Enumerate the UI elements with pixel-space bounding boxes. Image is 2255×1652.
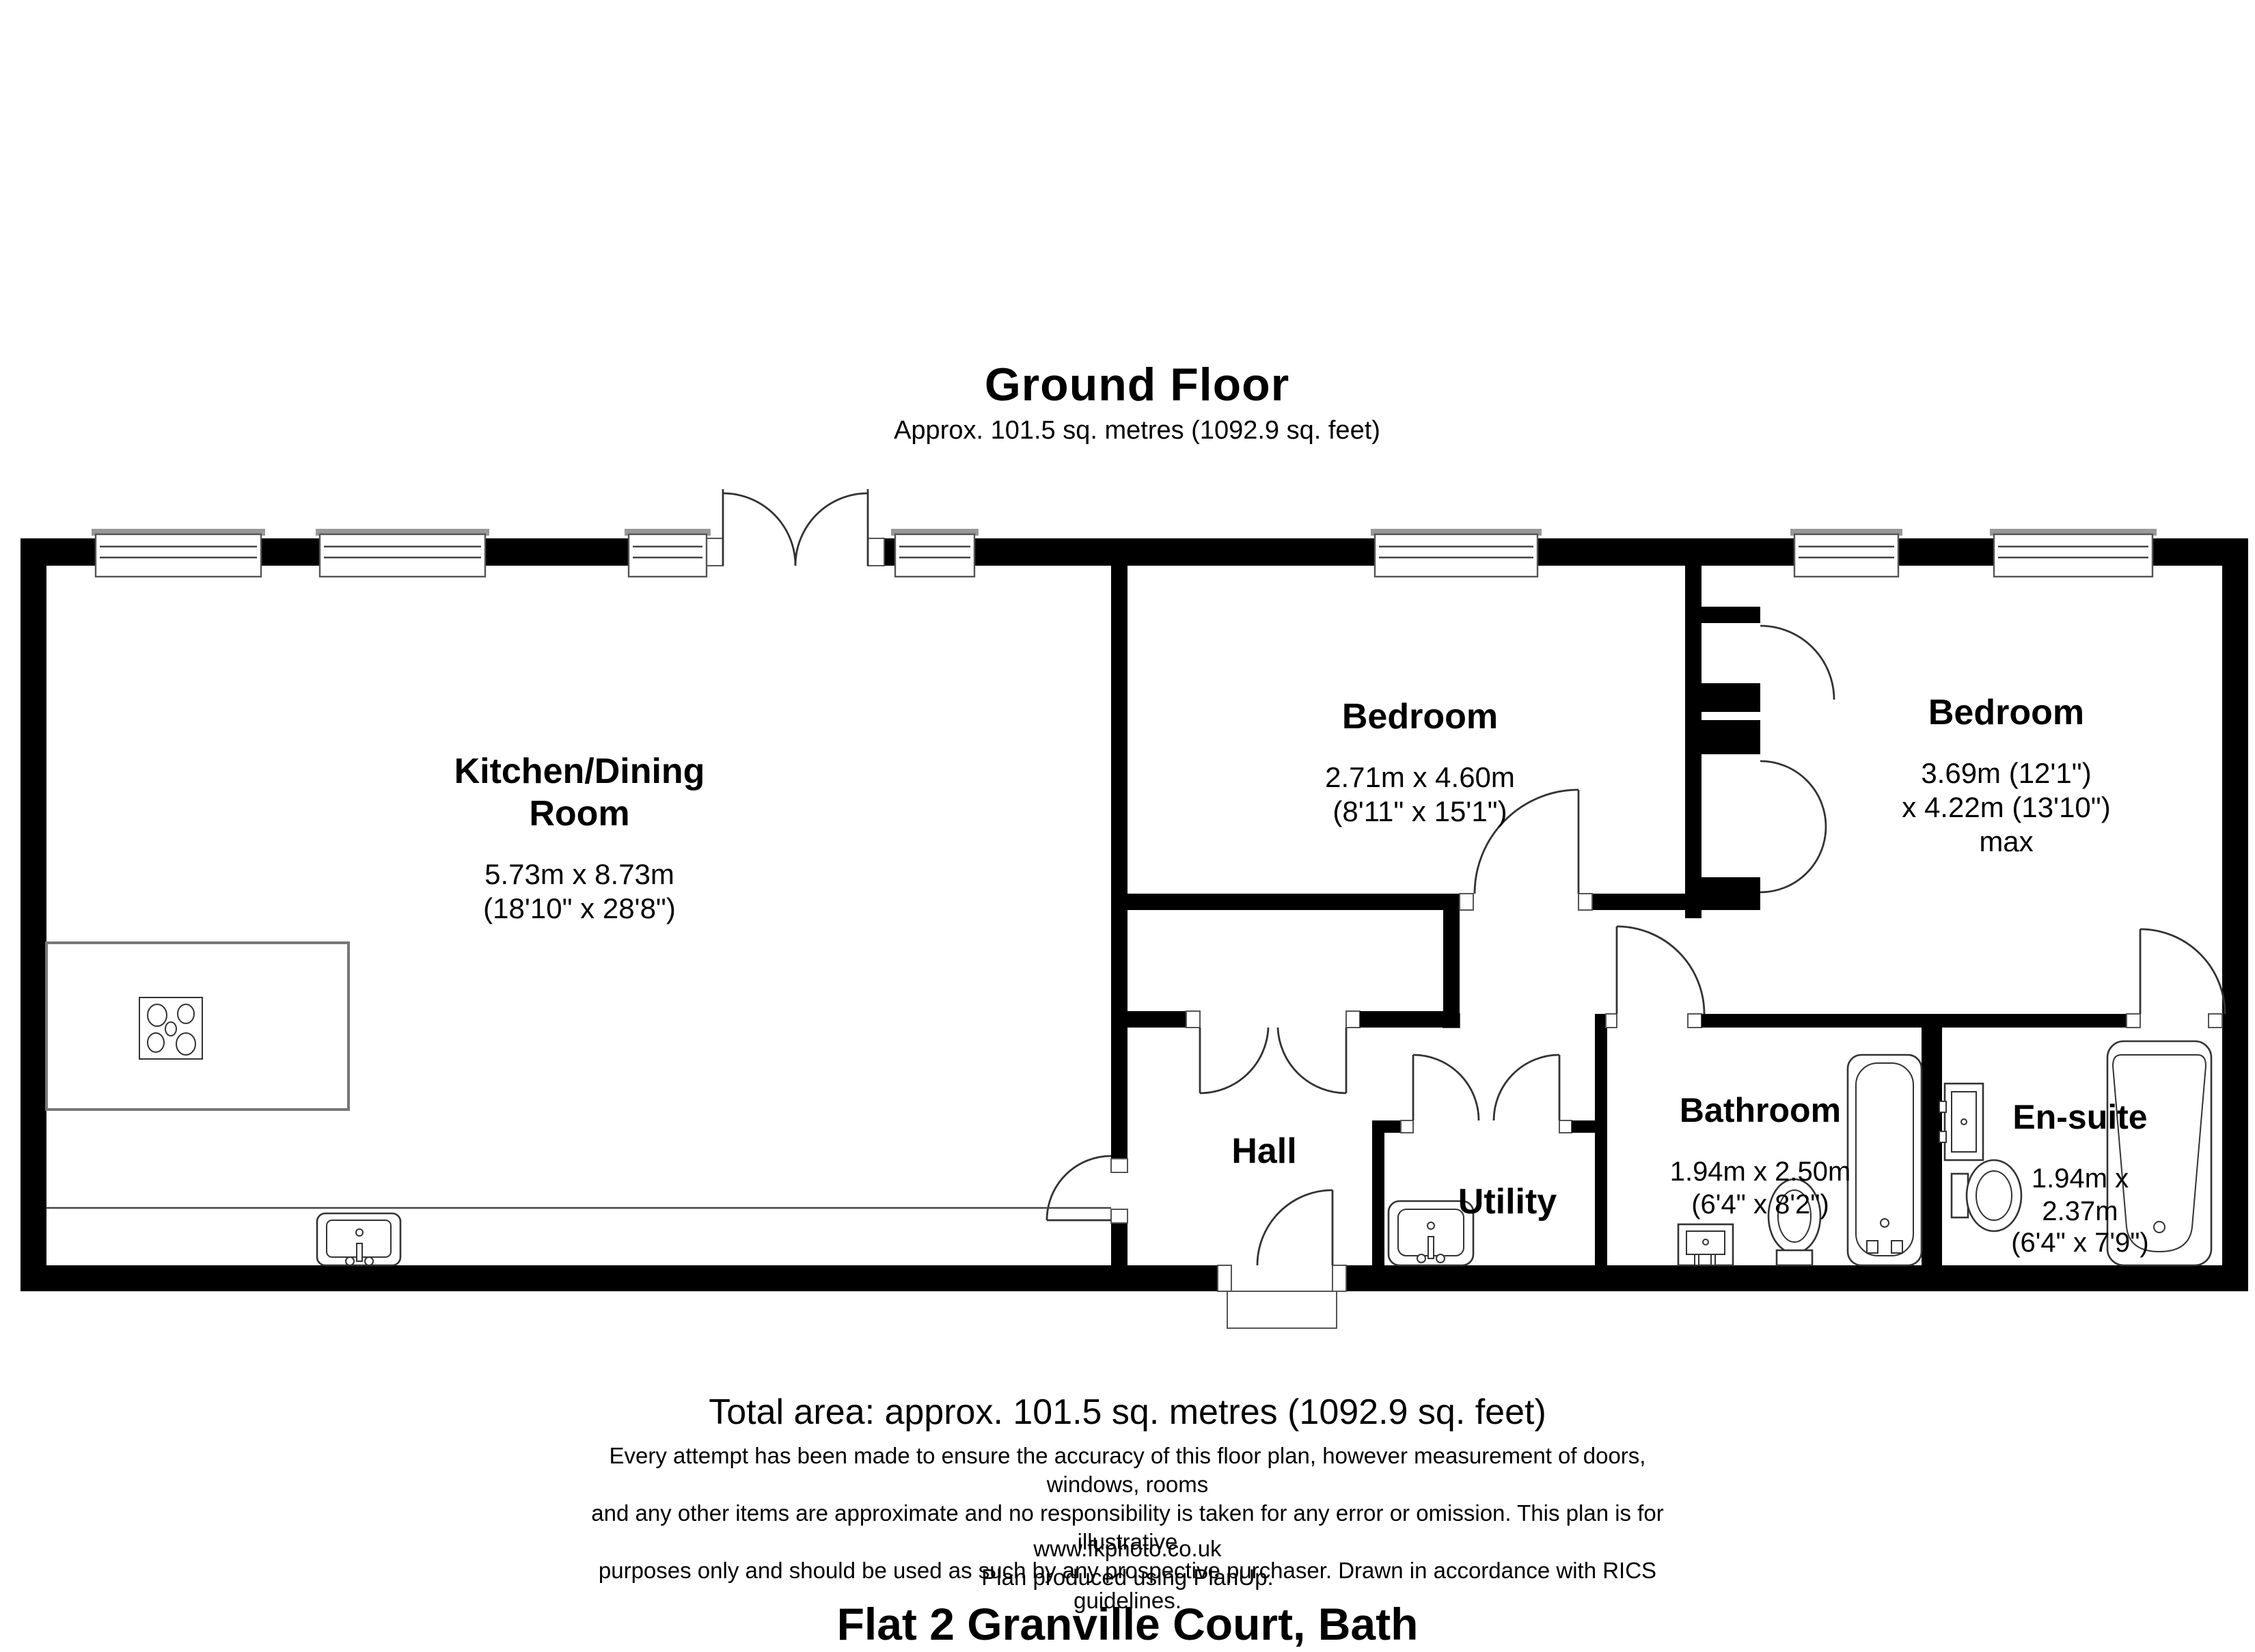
room-label-bedroom2: Bedroom 3.69m (12'1") x 4.22m (13'10") m…	[1882, 665, 2131, 886]
room-label-utility: Utility	[1458, 1155, 1557, 1248]
door-swing-icon	[1760, 827, 1826, 892]
kitchen-sink-icon	[317, 1213, 400, 1265]
french-door	[707, 489, 884, 566]
kitchen-fixtures	[46, 943, 1111, 1265]
room-label-kitchen: Kitchen/Dining Room 5.73m x 8.73m (18'10…	[454, 724, 705, 953]
room-label-hall: Hall	[1231, 1104, 1296, 1198]
ensuite-sink-icon	[1939, 1084, 1983, 1160]
room-label-bedroom1: Bedroom 2.71m x 4.60m (8'11" x 15'1")	[1325, 670, 1515, 857]
door-swing-icon	[1257, 1190, 1332, 1265]
room-label-ensuite: En-suite 1.94m x 2.37m (6'4" x 7'9")	[1993, 1073, 2168, 1287]
window-icon	[92, 529, 265, 577]
room-dims: 5.73m x 8.73m (18'10" x 28'8")	[454, 859, 705, 927]
window-icon	[891, 529, 979, 577]
door-swing-icon	[1617, 926, 1704, 1014]
room-name: Bedroom	[1882, 691, 2131, 733]
window-icon	[625, 529, 711, 577]
door-swing-icon	[1278, 1028, 1346, 1093]
room-dims: 2.71m x 4.60m (8'11" x 15'1")	[1325, 763, 1515, 831]
room-name: Hall	[1231, 1130, 1296, 1172]
door-swing-icon	[2140, 929, 2225, 1014]
door-swing-icon	[1413, 1055, 1479, 1120]
window-icon	[1371, 529, 1542, 577]
room-name: Bedroom	[1325, 696, 1515, 737]
room-dims: 3.69m (12'1") x 4.22m (13'10") max	[1882, 759, 2131, 861]
software-credit: Plan produced using PlanUp.	[981, 1565, 1273, 1594]
entrance-threshold	[1227, 1291, 1337, 1328]
room-name: En-suite	[1993, 1099, 2168, 1139]
floor-title: Ground Floor	[985, 358, 1289, 413]
door-swing-icon	[1494, 1055, 1559, 1120]
room-label-bathroom: Bathroom 1.94m x 2.50m (6'4" x 8'2")	[1670, 1066, 1851, 1248]
room-dims: 1.94m x 2.37m (6'4" x 7'9")	[1993, 1165, 2168, 1262]
room-name: Kitchen/Dining Room	[454, 750, 705, 834]
hob-icon	[139, 997, 202, 1059]
door-swing-icon	[1047, 1156, 1111, 1220]
website-link: www.fkphoto.co.uk	[1033, 1536, 1221, 1565]
floorplan-page: Ground Floor Approx. 101.5 sq. metres (1…	[0, 0, 2255, 1640]
total-area: Total area: approx. 101.5 sq. metres (10…	[709, 1391, 1546, 1433]
door-swing-icon	[1760, 761, 1826, 827]
window-icon	[1990, 529, 2157, 577]
room-dims: 1.94m x 2.50m (6'4" x 8'2")	[1670, 1158, 1851, 1222]
room-name: Utility	[1458, 1181, 1557, 1222]
door-swing-icon	[1760, 626, 1834, 700]
property-title: Flat 2 Granville Court, Bath	[837, 1599, 1419, 1652]
window-icon	[1790, 529, 1902, 577]
room-name: Bathroom	[1670, 1092, 1851, 1132]
window-icon	[316, 529, 489, 577]
bathroom-bath-icon	[1848, 1055, 1922, 1265]
door-swing-icon	[1200, 1028, 1268, 1093]
floor-area-note: Approx. 101.5 sq. metres (1092.9 sq. fee…	[894, 417, 1380, 448]
